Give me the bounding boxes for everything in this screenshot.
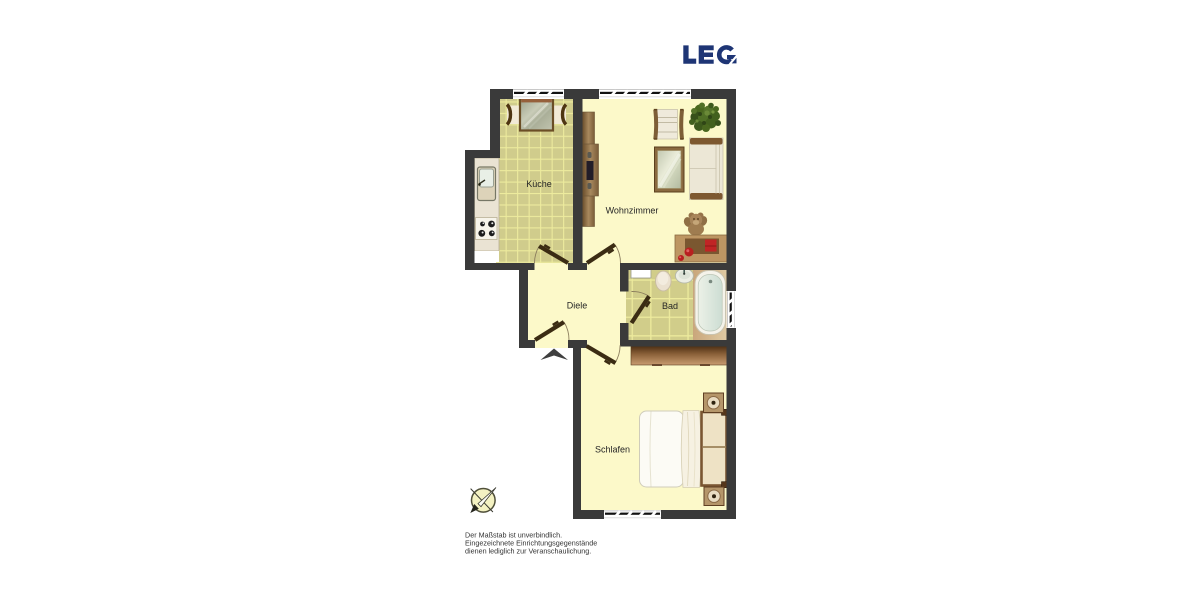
svg-text:Bad: Bad: [662, 301, 678, 311]
svg-text:Schlafen: Schlafen: [595, 445, 630, 455]
svg-text:Küche: Küche: [526, 179, 552, 189]
svg-text:Wohnzimmer: Wohnzimmer: [606, 206, 659, 216]
svg-text:Diele: Diele: [567, 301, 588, 311]
svg-text:dienen lediglich zur Veranscha: dienen lediglich zur Veranschaulichung.: [465, 546, 591, 555]
